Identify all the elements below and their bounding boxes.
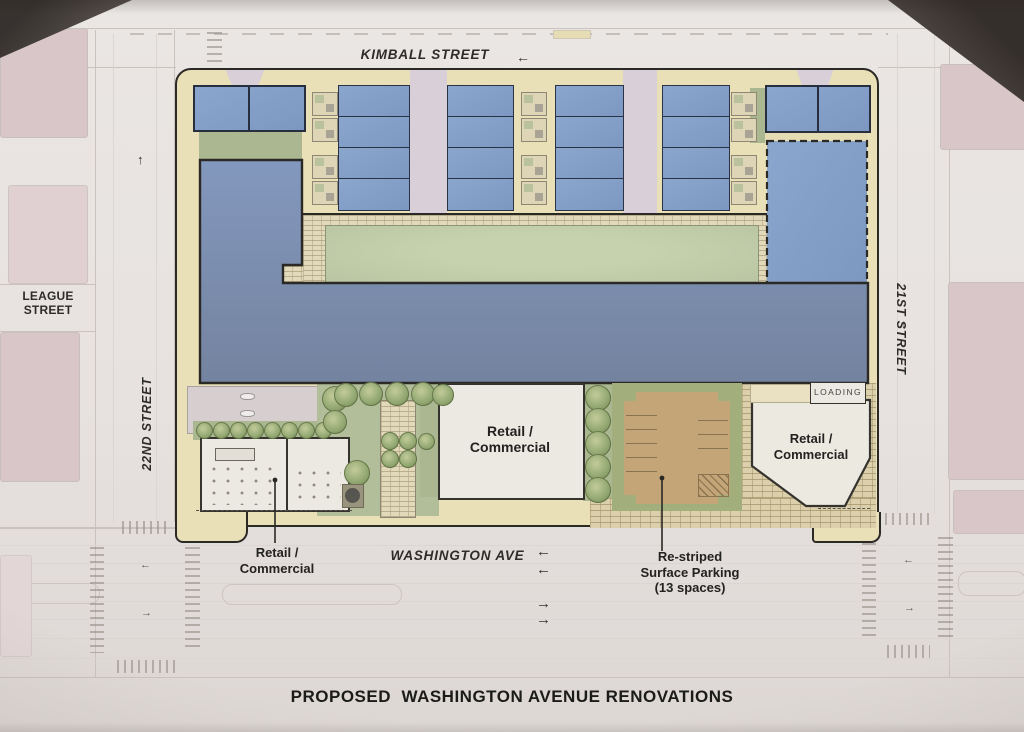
traffic-arrow-left-icon: ← bbox=[903, 555, 914, 566]
traffic-arrow-right-icon: → bbox=[904, 603, 915, 614]
traffic-arrow-right-icon: → bbox=[536, 612, 551, 627]
traffic-arrow-down-icon: ↓ bbox=[901, 318, 907, 330]
retail-right-label: Retail / Commercial bbox=[758, 431, 864, 462]
retail-bottom-label: Retail / Commercial bbox=[212, 545, 342, 576]
plan-title: PROPOSED WASHINGTON AVENUE RENOVATIONS bbox=[0, 687, 1024, 707]
traffic-arrow-right-icon: → bbox=[141, 608, 152, 619]
league-street-label: LEAGUE STREET bbox=[0, 289, 96, 317]
traffic-arrow-up-icon: ↑ bbox=[137, 153, 144, 166]
traffic-arrow-right-icon: → bbox=[536, 596, 551, 611]
street22-label: 22ND STREET bbox=[140, 374, 154, 474]
washington-ave-label: WASHINGTON AVE bbox=[385, 548, 530, 563]
kimball-street-label: KIMBALL STREET bbox=[330, 47, 520, 62]
traffic-arrow-left-icon: ← bbox=[516, 50, 530, 64]
traffic-arrow-left-icon: ← bbox=[140, 560, 151, 571]
retail-center-label: Retail / Commercial bbox=[445, 424, 575, 455]
annotation-leaders bbox=[0, 0, 1024, 732]
traffic-arrow-left-icon: ← bbox=[536, 562, 551, 577]
parking-note-label: Re-striped Surface Parking (13 spaces) bbox=[620, 549, 760, 596]
traffic-arrow-left-icon: ← bbox=[536, 544, 551, 559]
site-plan-photo: LOADING bbox=[0, 0, 1024, 732]
